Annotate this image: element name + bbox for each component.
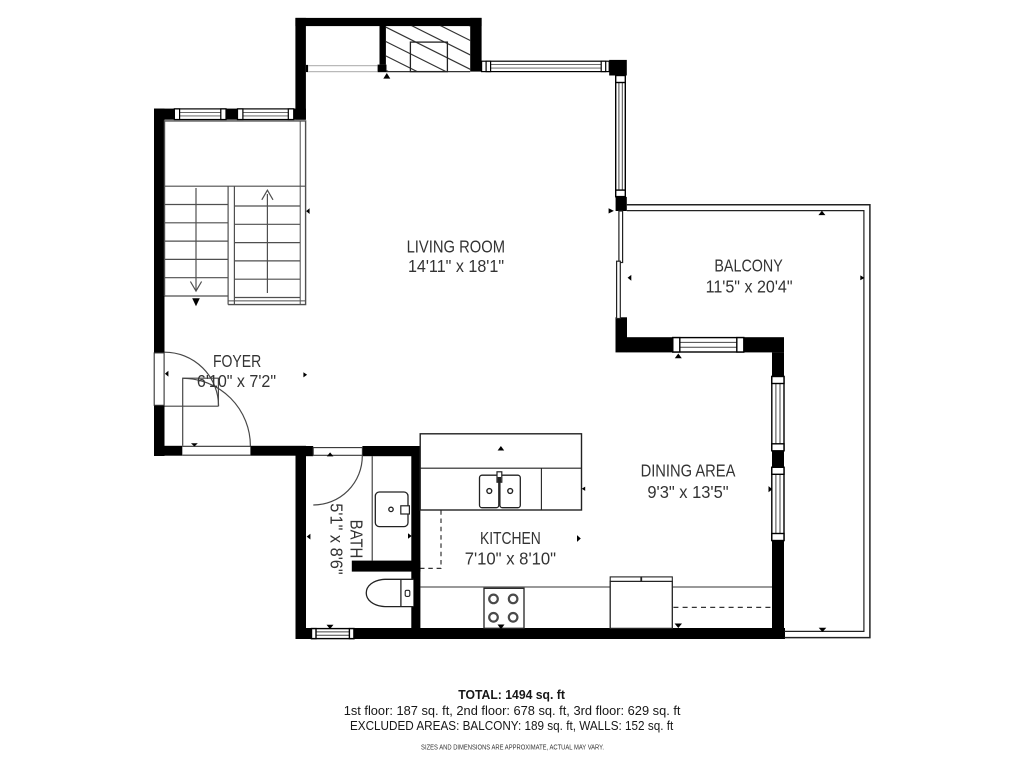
svg-text:6'10" x 7'2": 6'10" x 7'2" (197, 371, 276, 391)
svg-text:14'11" x 18'1": 14'11" x 18'1" (408, 256, 504, 276)
svg-text:1st floor: 187 sq. ft, 2nd flo: 1st floor: 187 sq. ft, 2nd floor: 678 sq… (344, 703, 681, 718)
svg-text:DINING AREA: DINING AREA (641, 460, 736, 480)
svg-text:11'5" x 20'4": 11'5" x 20'4" (706, 277, 793, 297)
svg-text:KITCHEN: KITCHEN (480, 528, 541, 548)
svg-text:LIVING ROOM: LIVING ROOM (407, 236, 505, 256)
svg-text:BALCONY: BALCONY (714, 256, 783, 276)
svg-text:9'3" x 13'5": 9'3" x 13'5" (647, 482, 728, 502)
svg-text:EXCLUDED AREAS: BALCONY: 189 s: EXCLUDED AREAS: BALCONY: 189 sq. ft, WAL… (350, 718, 674, 733)
svg-text:7'10" x 8'10": 7'10" x 8'10" (465, 548, 556, 568)
svg-text:SIZES AND DIMENSIONS ARE APPRO: SIZES AND DIMENSIONS ARE APPROXIMATE, AC… (421, 742, 604, 751)
svg-text:5'1" x 8'6": 5'1" x 8'6" (327, 503, 347, 574)
svg-text:FOYER: FOYER (213, 351, 261, 371)
svg-text:BATH: BATH (346, 520, 366, 559)
svg-text:TOTAL: 1494 sq. ft: TOTAL: 1494 sq. ft (458, 687, 565, 702)
